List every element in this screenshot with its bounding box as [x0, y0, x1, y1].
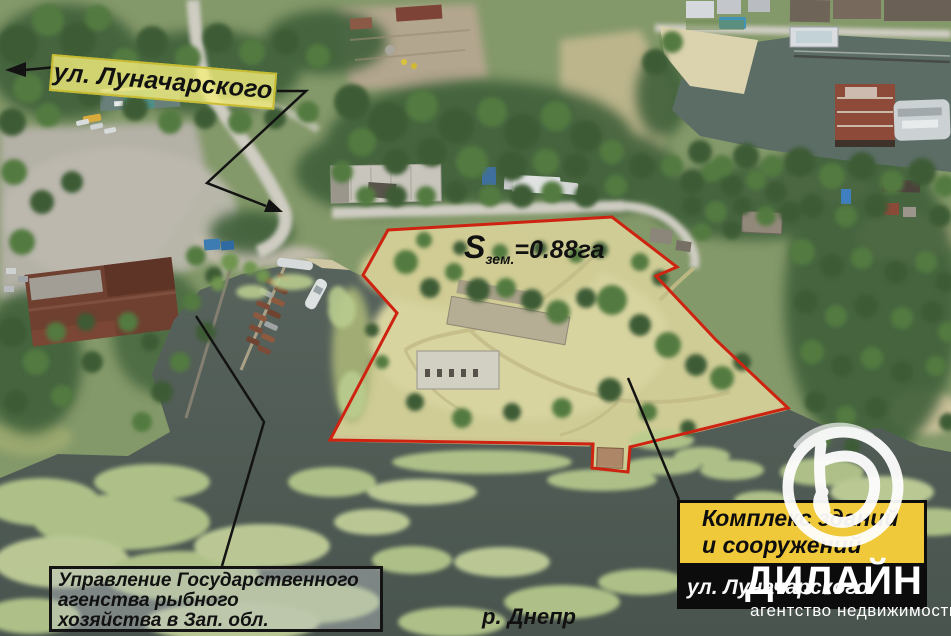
brand-tagline: агентство недвижимости [750, 601, 951, 621]
area-subscript: зем. [485, 251, 514, 267]
brand-watermark: ДИЛАЙН [745, 559, 923, 604]
fishery-line-2: агенства рыбного [58, 591, 374, 611]
area-value: =0.88га [514, 236, 604, 264]
complex-line-2: и сооружений [702, 532, 924, 559]
white-building [417, 351, 499, 389]
area-symbol: S [464, 229, 485, 265]
aerial-photo: ул. Луначарского Sзем.=0.88га Управление… [0, 0, 951, 636]
boat-dock [597, 448, 624, 469]
fishery-agency-label: Управление Государственного агенства рыб… [49, 566, 383, 632]
fishery-line-1: Управление Государственного [58, 571, 374, 591]
river-label: р. Днепр [482, 604, 576, 630]
fishery-line-3: хозяйства в Зап. обл. [58, 611, 374, 631]
complex-label-title: Комплекс зданий и сооружений [677, 500, 927, 566]
complex-line-1: Комплекс зданий [702, 505, 924, 532]
land-area-label: Sзем.=0.88га [464, 229, 605, 267]
